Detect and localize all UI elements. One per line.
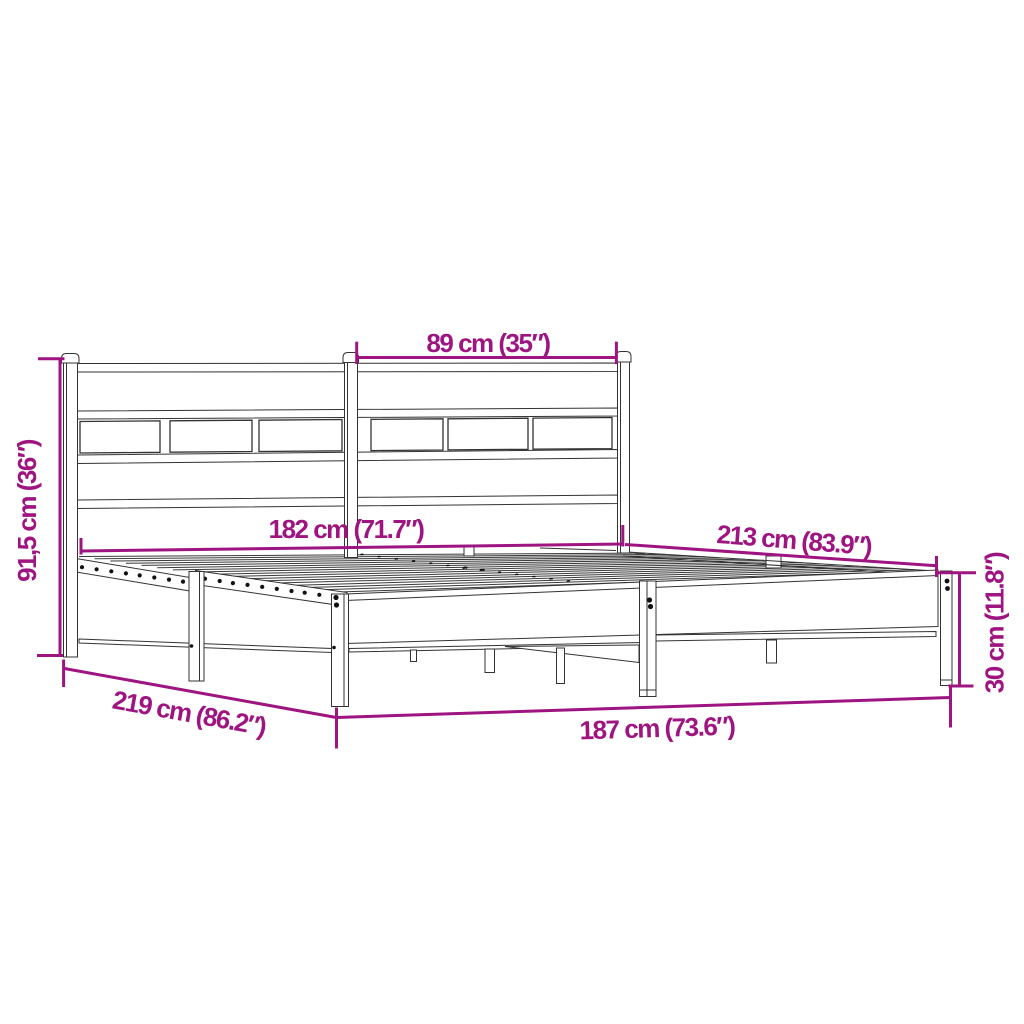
svg-text:182 cm (71.7″): 182 cm (71.7″)	[269, 514, 425, 544]
svg-text:187 cm (73.6″): 187 cm (73.6″)	[579, 711, 735, 746]
svg-text:89 cm (35″): 89 cm (35″)	[426, 328, 550, 358]
svg-text:30 cm (11.8″): 30 cm (11.8″)	[980, 552, 1010, 693]
svg-text:91,5 cm (36″): 91,5 cm (36″)	[12, 439, 42, 582]
